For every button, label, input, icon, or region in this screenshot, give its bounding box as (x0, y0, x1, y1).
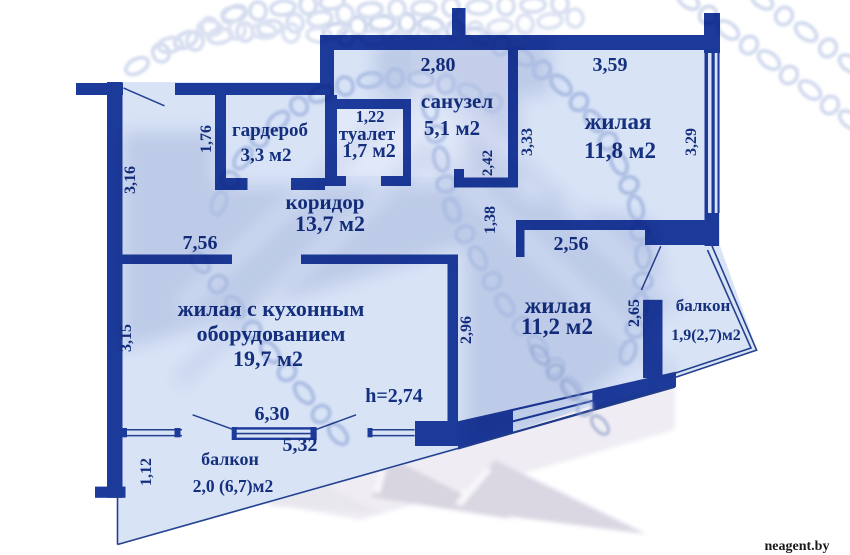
svg-text:h=2,74: h=2,74 (365, 385, 423, 407)
svg-text:2,0 (6,7)м2: 2,0 (6,7)м2 (193, 476, 273, 496)
svg-text:3,29: 3,29 (683, 128, 700, 156)
svg-text:5,32: 5,32 (283, 434, 318, 456)
svg-text:1,9(2,7)м2: 1,9(2,7)м2 (671, 327, 741, 344)
svg-text:1,12: 1,12 (138, 458, 155, 486)
svg-text:балкон: балкон (201, 449, 259, 469)
svg-text:балкон: балкон (676, 296, 731, 315)
svg-text:6,30: 6,30 (255, 403, 290, 425)
svg-text:11,8 м2: 11,8 м2 (584, 138, 656, 163)
svg-text:3,33: 3,33 (519, 128, 536, 156)
svg-text:neagent.by: neagent.by (765, 539, 830, 554)
svg-text:3,59: 3,59 (593, 54, 628, 76)
